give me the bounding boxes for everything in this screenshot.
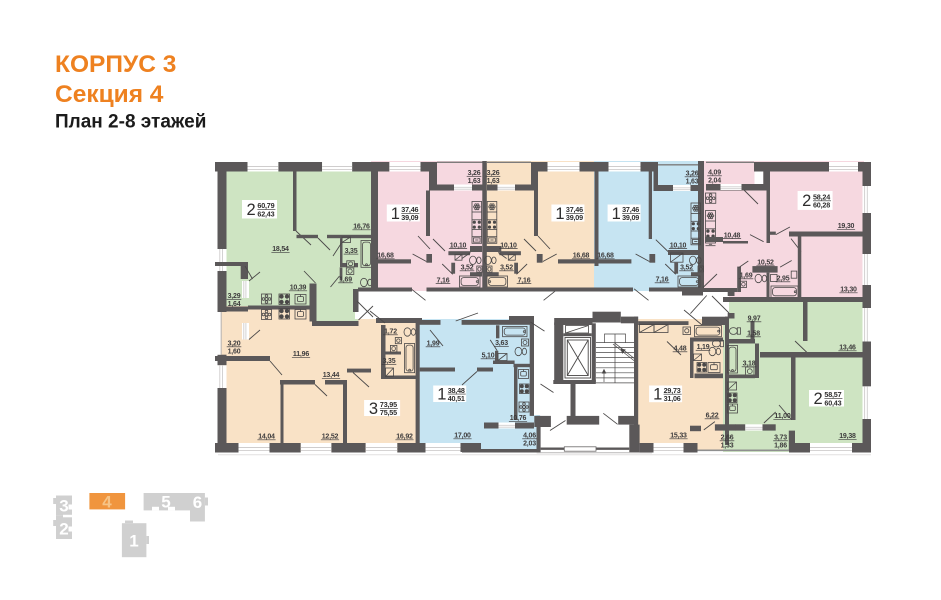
svg-text:5: 5: [161, 493, 170, 512]
svg-text:1,63: 1,63: [686, 179, 699, 186]
svg-text:40,51: 40,51: [448, 394, 465, 403]
svg-text:75,55: 75,55: [380, 408, 397, 417]
svg-text:2,03: 2,03: [523, 441, 536, 448]
svg-text:39,09: 39,09: [566, 213, 583, 222]
svg-text:1: 1: [437, 386, 446, 404]
svg-text:2: 2: [247, 201, 256, 219]
svg-text:3: 3: [59, 497, 68, 516]
svg-text:39,09: 39,09: [401, 213, 418, 222]
svg-text:2,04: 2,04: [708, 178, 721, 185]
svg-text:60,28: 60,28: [813, 201, 830, 210]
svg-text:60,43: 60,43: [824, 398, 841, 407]
svg-text:1,64: 1,64: [228, 301, 241, 308]
svg-text:1,63: 1,63: [468, 178, 481, 185]
svg-text:1: 1: [129, 532, 138, 551]
svg-text:2: 2: [802, 192, 811, 210]
svg-text:1: 1: [555, 205, 564, 223]
svg-text:1,86: 1,86: [774, 443, 787, 450]
svg-text:2: 2: [59, 520, 68, 539]
svg-text:1,60: 1,60: [228, 349, 241, 356]
svg-text:62,43: 62,43: [257, 209, 274, 218]
svg-text:1: 1: [612, 205, 621, 223]
svg-text:39,09: 39,09: [622, 213, 639, 222]
svg-text:План 2-8 этажей: План 2-8 этажей: [55, 112, 206, 133]
svg-text:31,06: 31,06: [664, 394, 681, 403]
svg-text:1: 1: [391, 205, 400, 223]
svg-text:Секция 4: Секция 4: [55, 81, 164, 108]
svg-text:6: 6: [193, 493, 202, 512]
svg-text:1: 1: [653, 386, 662, 404]
svg-text:3: 3: [369, 400, 378, 418]
svg-text:1,33: 1,33: [721, 443, 734, 450]
svg-text:1,63: 1,63: [487, 178, 500, 185]
svg-text:КОРПУС 3: КОРПУС 3: [55, 51, 176, 78]
svg-text:4: 4: [102, 493, 112, 512]
svg-text:2: 2: [814, 390, 823, 408]
